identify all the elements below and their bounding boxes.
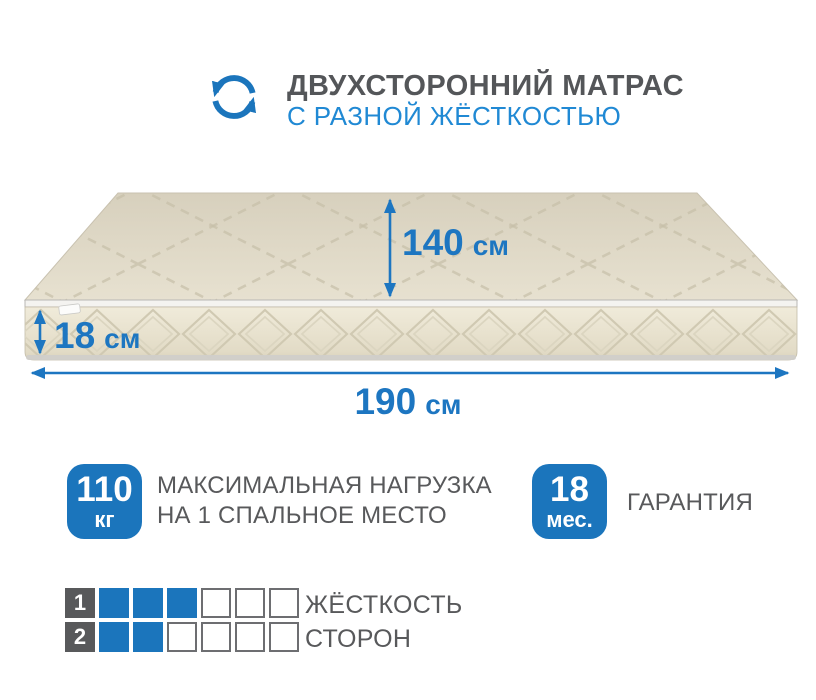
max-load-description: МАКСИМАЛЬНАЯ НАГРУЗКА НА 1 СПАЛЬНОЕ МЕСТ…	[157, 471, 492, 531]
firmness-label-line1: ЖЁСТКОСТЬ	[305, 588, 463, 622]
dimension-width-label: 140см	[402, 224, 509, 261]
max-load-badge: 110 кг	[67, 464, 142, 539]
mattress-infographic: ДВУХСТОРОННИЙ МАТРАС С РАЗНОЙ ЖЁСТКОСТЬЮ	[0, 0, 816, 700]
max-load-value: 110	[76, 472, 132, 507]
firmness-row-side-1: 1	[65, 588, 299, 618]
firmness-cell-empty	[235, 622, 265, 652]
firmness-side-number: 1	[65, 588, 95, 618]
dimension-height-value: 18	[54, 315, 95, 356]
warranty-unit: мес.	[546, 509, 593, 531]
dimension-length-label: 190см	[320, 383, 496, 420]
mattress-bottom-piping	[26, 355, 796, 360]
max-load-description-line1: МАКСИМАЛЬНАЯ НАГРУЗКА	[157, 471, 492, 501]
product-title: ДВУХСТОРОННИЙ МАТРАС	[287, 70, 684, 103]
firmness-cell-empty	[201, 588, 231, 618]
dimension-width-unit: см	[473, 230, 509, 261]
warranty-value: 18	[550, 472, 589, 507]
mattress-piping	[25, 300, 797, 307]
firmness-labels: ЖЁСТКОСТЬ СТОРОН	[305, 588, 463, 656]
firmness-cell-empty	[201, 622, 231, 652]
firmness-cell-empty	[269, 588, 299, 618]
firmness-row-side-2: 2	[65, 622, 299, 652]
firmness-cell-empty	[235, 588, 265, 618]
firmness-side-number: 2	[65, 622, 95, 652]
dimension-length-value: 190	[354, 381, 416, 422]
dimension-height-unit: см	[104, 323, 140, 354]
dimension-width-value: 140	[402, 222, 464, 263]
warranty-badge: 18 мес.	[532, 464, 607, 539]
firmness-cell-filled	[133, 622, 163, 652]
rotation-arc-bottom	[215, 101, 252, 116]
rotation-arc-top	[216, 78, 253, 93]
product-subtitle: С РАЗНОЙ ЖЁСТКОСТЬЮ	[287, 101, 621, 132]
firmness-cell-empty	[167, 622, 197, 652]
max-load-description-line2: НА 1 СПАЛЬНОЕ МЕСТО	[157, 501, 492, 531]
firmness-label-line2: СТОРОН	[305, 622, 463, 656]
mattress-front-quilting	[25, 307, 797, 360]
dimension-height-label: 18см	[54, 317, 140, 354]
firmness-cell-filled	[99, 588, 129, 618]
warranty-label: ГАРАНТИЯ	[627, 489, 753, 517]
firmness-cell-filled	[99, 622, 129, 652]
firmness-cell-empty	[269, 622, 299, 652]
firmness-cell-filled	[133, 588, 163, 618]
dimension-length-unit: см	[425, 389, 461, 420]
firmness-cell-filled	[167, 588, 197, 618]
firmness-grid: 12	[65, 588, 299, 652]
max-load-unit: кг	[94, 509, 114, 531]
two-sided-rotation-icon	[201, 64, 267, 130]
